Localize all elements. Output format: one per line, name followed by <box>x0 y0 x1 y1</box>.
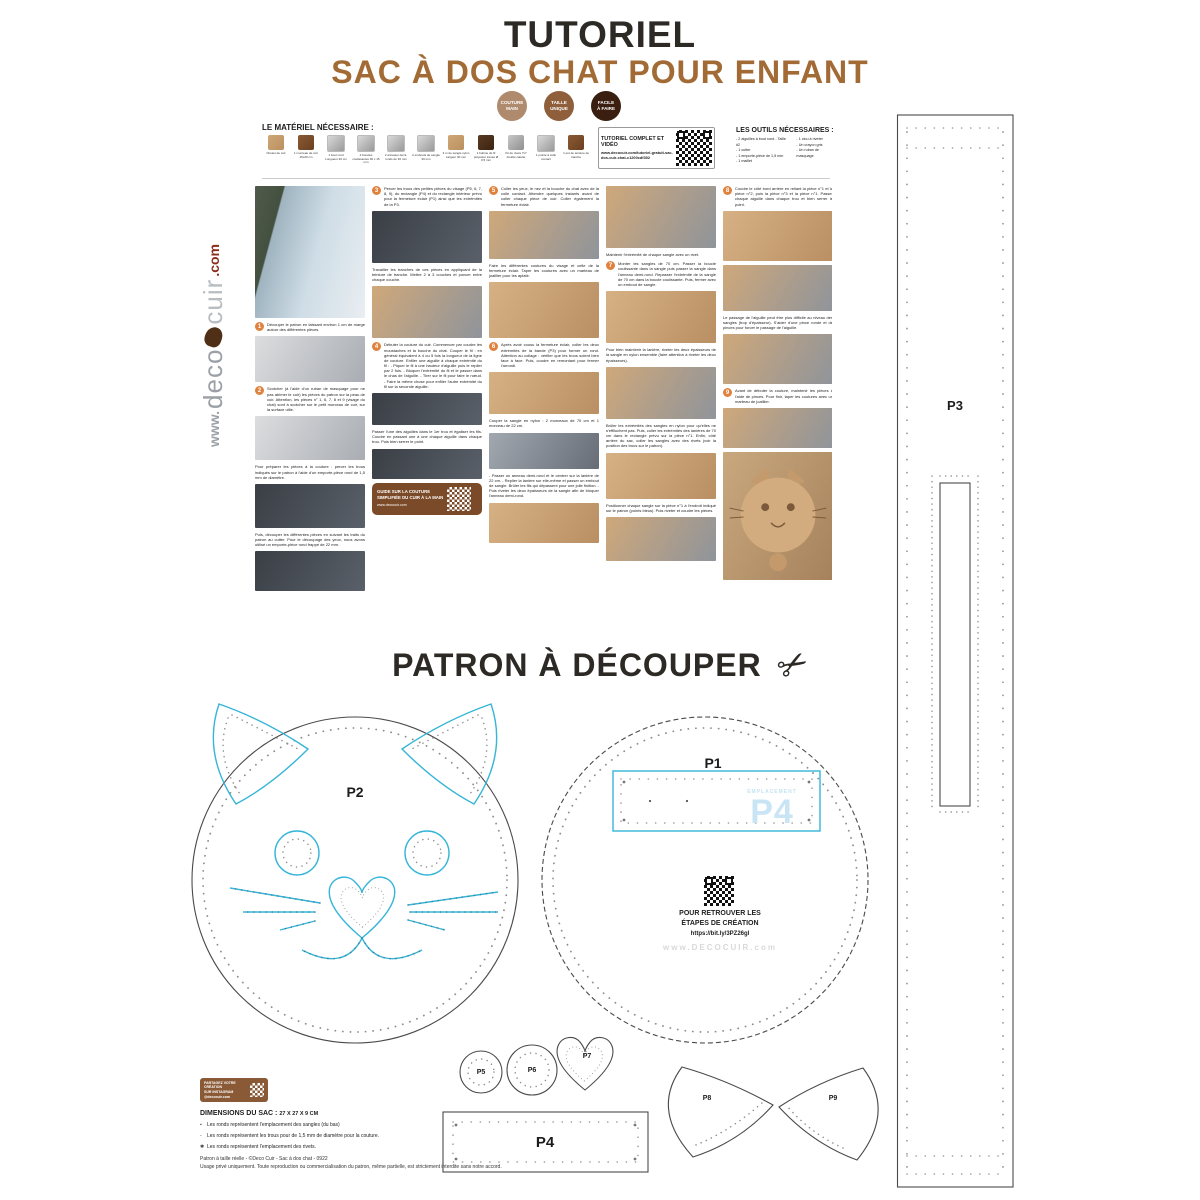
step-text: Monter les sangles de 70 cm. Passer la b… <box>618 261 716 287</box>
material-thumb <box>327 135 345 152</box>
step-text: - Passer un anneau demi-rond et le centr… <box>489 473 599 499</box>
material-label: 1 pot de teinture de tranche <box>562 152 590 159</box>
material-item: 1 bobine de fil polyester tressé Ø 0,5 m… <box>472 135 500 165</box>
material-label: Kit de rivets 7x7 double calotte <box>502 152 530 159</box>
material-item: 1 bout rond Longueur 20 cm <box>322 135 350 165</box>
steps-qr-caption: POUR RETROUVER LES ÉTAPES DE CRÉATION ht… <box>645 909 795 938</box>
copyright-line1: Patron à taille réelle - ©Deco Cuir - Sa… <box>200 1156 530 1164</box>
tutorial-step: 5Coller les yeux, le nez et la bouche du… <box>489 186 599 207</box>
step-number-badge: 2 <box>255 386 264 395</box>
dimensions-line: DIMENSIONS DU SAC : 27 X 27 X 9 CM <box>200 1110 318 1117</box>
tutorial-step: 1Découper le patron en laissant environ … <box>255 322 365 332</box>
tool-item: Un ruban de masquage <box>796 148 836 159</box>
legend-item: -Les ronds représentent les trous pour d… <box>200 1133 540 1139</box>
right-eye-outline <box>405 831 449 875</box>
tutorial-step: 8Coudre le côté bord arrière en reliant … <box>723 186 832 207</box>
left-ear-outline <box>213 704 308 804</box>
guide-qr-code <box>447 487 471 511</box>
video-box-url: www.decocuir.com/tutoriel-gratuit-sac-do… <box>601 150 673 160</box>
sewing-guide-box: GUIDE SUR LA COUTURESIMPLIFIÉE DU CUIR À… <box>372 483 482 515</box>
badge-couture-main: COUTURE MAIN <box>497 91 527 121</box>
tool-item: 1 maillet <box>736 159 789 165</box>
materials-section: LE MATÉRIEL NÉCESSAIRE : Chutes de cuir1… <box>262 123 592 165</box>
left-eye-outline <box>275 831 319 875</box>
decocuir-logo: www.deco cuir.com <box>186 238 242 452</box>
materials-heading: LE MATÉRIEL NÉCESSAIRE : <box>262 123 592 132</box>
step-text: Le passage de l'aiguille peut être plus … <box>723 315 832 331</box>
tutorial-photo <box>489 282 599 338</box>
badge-facile-a-faire: FACILE À FAIRE <box>591 91 621 121</box>
material-label: 1 morceau de cuir 15x20 cm <box>292 152 320 159</box>
tutorial-photo <box>255 484 365 528</box>
step-number-badge: 5 <box>489 186 498 195</box>
decocuir-watermark: www.DECOCUIR.com <box>645 943 795 952</box>
material-item: 2 embouts de sangle 30 mm <box>412 135 440 165</box>
video-qr-code <box>676 130 712 166</box>
pattern-piece-p9: P9 <box>779 1068 878 1160</box>
copyright-block: Patron à taille réelle - ©Deco Cuir - Sa… <box>200 1156 530 1172</box>
tutorial-photo <box>723 265 832 311</box>
tutorial-step: 9Avant de débuter la couture, maintenir … <box>723 388 832 404</box>
label-p1: P1 <box>704 755 721 771</box>
legend-list: ▪Les ronds représentent l'emplacement de… <box>200 1122 540 1150</box>
nose-heart-outline <box>329 877 395 938</box>
share-qr-code <box>250 1083 264 1097</box>
pattern-piece-p5: P5 <box>460 1051 502 1093</box>
p3-slot <box>940 483 970 806</box>
step-number-badge: 6 <box>489 342 498 351</box>
material-label: 2 embouts de sangle 30 mm <box>412 154 440 161</box>
finished-bag-illustration <box>723 452 832 580</box>
tutorial-step: 6Après avoir cousu la fermeture éclair, … <box>489 342 599 368</box>
material-item: Chutes de cuir <box>262 135 290 165</box>
tutorial-sheet: TUTORIEL SAC À DOS CHAT POUR ENFANT COUT… <box>0 0 1200 1200</box>
tutorial-photo <box>255 336 365 382</box>
material-thumb <box>298 135 314 150</box>
tutorial-column-2: 3Percer les trous des petites pièces du … <box>372 186 482 628</box>
tutorial-column-5: 8Coudre le côté bord arrière en reliant … <box>723 186 832 628</box>
leather-hide-icon <box>203 324 225 348</box>
legend-item: ▪Les ronds représentent l'emplacement de… <box>200 1122 540 1128</box>
material-thumb <box>537 135 555 152</box>
material-label: 3 m de sangle nylon Largeur 30 mm <box>442 152 470 159</box>
step-number-badge: 9 <box>723 388 732 397</box>
label-p2: P2 <box>346 784 363 800</box>
step-text: Puis, découper les différentes pièces en… <box>255 532 365 548</box>
step-number-badge: 7 <box>606 261 615 270</box>
material-thumb <box>417 135 435 152</box>
tutorial-photo <box>723 408 832 448</box>
dimensions-value: 27 X 27 X 9 CM <box>279 1111 318 1117</box>
material-item: 1 pot de teinture de tranche <box>562 135 590 165</box>
material-label: 2 anneaux demi-ronds de 30 mm <box>382 154 410 161</box>
divider <box>262 178 830 179</box>
material-label: 1 bout rond Longueur 20 cm <box>322 154 350 161</box>
scissors-icon: ✂ <box>769 639 816 690</box>
pattern-piece-p3: P3 <box>890 110 1020 1190</box>
material-label: Chutes de cuir <box>262 152 290 156</box>
material-item: 1 morceau de cuir 15x20 cm <box>292 135 320 165</box>
tutorial-photo <box>489 433 599 469</box>
tutorial-photo <box>372 211 482 263</box>
badge-taille-unique: TAILLE UNIQUE <box>544 91 574 121</box>
material-thumb <box>478 135 494 150</box>
step-text: Couper la sangle en nylon : 2 morceaux d… <box>489 418 599 428</box>
label-p6: P6 <box>528 1067 537 1074</box>
copyright-line2: Usage privé uniquement. Toute reproducti… <box>200 1164 530 1172</box>
patron-heading: PATRON À DÉCOUPER <box>392 647 762 684</box>
materials-items: Chutes de cuir1 morceau de cuir 15x20 cm… <box>262 135 592 165</box>
tutorial-photo <box>606 291 716 343</box>
label-p5: P5 <box>477 1069 486 1076</box>
material-item: 2 anneaux demi-ronds de 30 mm <box>382 135 410 165</box>
guide-text: GUIDE SUR LA COUTURESIMPLIFIÉE DU CUIR À… <box>377 489 443 507</box>
legend-item: ✱Les ronds représentent l'emplacement de… <box>200 1144 540 1150</box>
tutorial-photo <box>489 372 599 414</box>
mouth-left <box>302 938 362 959</box>
right-ear-outline <box>402 704 497 804</box>
step-number-badge: 1 <box>255 322 264 331</box>
pattern-legend: ▪Les ronds représentent l'emplacement de… <box>200 1122 540 1155</box>
video-box-title: TUTORIEL COMPLET ET VIDÉO <box>601 136 673 149</box>
label-p3: P3 <box>947 398 963 413</box>
tutorial-photo <box>606 367 716 419</box>
step-number-badge: 4 <box>372 342 381 351</box>
material-item: Kit de rivets 7x7 double calotte <box>502 135 530 165</box>
pattern-piece-p8: P8 <box>668 1067 773 1157</box>
material-thumb <box>357 135 375 152</box>
step-text: Après avoir cousu la fermeture éclair, c… <box>501 342 599 368</box>
tool-item: 2 aiguilles à bout rond - Taille #2 <box>736 137 789 148</box>
step-number-badge: 3 <box>372 186 381 195</box>
material-item: 1 pointe à colle contact <box>532 135 560 165</box>
tools-col2: 1 clou à riveterUn crayon grisUn ruban d… <box>796 137 836 165</box>
pattern-piece-p6: P6 <box>507 1045 557 1095</box>
step-text: Coudre le côté bord arrière en reliant l… <box>735 186 832 207</box>
tutorial-step: 2Scotcher (à l'aide d'un ruban de masqua… <box>255 386 365 412</box>
tutorial-photo <box>489 503 599 543</box>
material-item: 2 boucles coulissantes 30 x 15 mm <box>352 135 380 165</box>
tutorial-photo <box>372 449 482 479</box>
page-title: TUTORIEL <box>0 14 1200 56</box>
page-subtitle: SAC À DOS CHAT POUR ENFANT <box>0 54 1200 91</box>
label-p7: P7 <box>583 1053 592 1060</box>
step-text: Coller les yeux, le nez et la bouche du … <box>501 186 599 207</box>
tutorial-photo <box>723 334 832 384</box>
step-text: Débuter la couture du cuir. Commencer pa… <box>384 342 482 389</box>
tutorial-photo <box>606 186 716 248</box>
tutorial-photo <box>723 211 832 261</box>
tools-heading: LES OUTILS NÉCESSAIRES : <box>736 127 836 134</box>
material-thumb <box>508 135 524 150</box>
material-label: 1 pointe à colle contact <box>532 154 560 161</box>
label-p8: P8 <box>703 1095 712 1102</box>
tutorial-photo <box>372 393 482 425</box>
material-thumb <box>387 135 405 152</box>
tutorial-photo <box>255 551 365 591</box>
step-text: Découper le patron en laissant environ 1… <box>267 322 365 332</box>
tutorial-column-3: 5Coller les yeux, le nez et la bouche du… <box>489 186 599 628</box>
tutorial-photo <box>489 211 599 259</box>
material-thumb <box>448 135 464 150</box>
tutorial-step: 7Monter les sangles de 70 cm. Passer la … <box>606 261 716 287</box>
steps-qr-url: https://bit.ly/3PZ26gl <box>645 930 795 938</box>
tutorial-photo <box>606 517 716 561</box>
step-text: Percer les trous des petites pièces du v… <box>384 186 482 207</box>
share-instagram-box: PARTAGEZ VOTRE CRÉATION SUR INSTAGRAM @d… <box>200 1078 268 1102</box>
finished-bag-photo <box>723 452 832 580</box>
material-thumb <box>568 135 584 150</box>
material-label: 2 boucles coulissantes 30 x 15 mm <box>352 154 380 165</box>
tutorial-step: 3Percer les trous des petites pièces du … <box>372 186 482 207</box>
step-text: Pour bien maintenir la lanière, riveter … <box>606 347 716 363</box>
material-label: 1 bobine de fil polyester tressé Ø 0,5 m… <box>472 152 500 163</box>
tutorial-column-1: 1Découper le patron en laissant environ … <box>255 186 365 628</box>
badge-row: COUTURE MAIN TAILLE UNIQUE FACILE À FAIR… <box>497 91 621 121</box>
material-item: 3 m de sangle nylon Largeur 30 mm <box>442 135 470 165</box>
step-text: Avant de débuter la couture, maintenir l… <box>735 388 832 404</box>
step-text: Maintenir l'extrémité de chaque sangle a… <box>606 252 716 257</box>
step-text: Passer l'une des aiguilles dans le 1er t… <box>372 429 482 445</box>
step-text: Pour préparer les pièces à la couture : … <box>255 464 365 480</box>
tutorial-photo <box>606 453 716 499</box>
tools-col1: 2 aiguilles à bout rond - Taille #21 cut… <box>736 137 789 165</box>
watermark-p4: P4 <box>750 793 794 831</box>
pattern-piece-p7: P7 <box>557 1037 613 1090</box>
step-number-badge: 8 <box>723 186 732 195</box>
mouth-right <box>362 938 422 959</box>
tutorial-grid: 1Découper le patron en laissant environ … <box>255 186 832 628</box>
tools-section: LES OUTILS NÉCESSAIRES : 2 aiguilles à b… <box>736 127 836 165</box>
tutorial-step: 4Débuter la couture du cuir. Commencer p… <box>372 342 482 389</box>
tutorial-photo <box>372 286 482 338</box>
pattern-piece-p2: P2 <box>192 704 518 1043</box>
video-tutorial-box: TUTORIEL COMPLET ET VIDÉO www.decocuir.c… <box>598 127 715 169</box>
tutorial-photo <box>255 416 365 460</box>
patron-heading-row: PATRON À DÉCOUPER ✂ <box>0 644 1200 686</box>
step-text: Scotcher (à l'aide d'un ruban de masquag… <box>267 386 365 412</box>
steps-qr-code <box>704 876 734 906</box>
material-thumb <box>268 135 284 150</box>
label-p9: P9 <box>829 1095 838 1102</box>
step-text: Brûler les extrémités des sangles en nyl… <box>606 423 716 449</box>
step-text: Faire les différentes coutures du visage… <box>489 263 599 279</box>
step-text: Positionner chaque sangle sur la pièce n… <box>606 503 716 513</box>
step-text: Travailler les tranches de ces pièces en… <box>372 267 482 283</box>
tutorial-column-4: Maintenir l'extrémité de chaque sangle a… <box>606 186 716 628</box>
dimensions-label: DIMENSIONS DU SAC : <box>200 1110 277 1117</box>
tutorial-photo <box>255 186 365 318</box>
